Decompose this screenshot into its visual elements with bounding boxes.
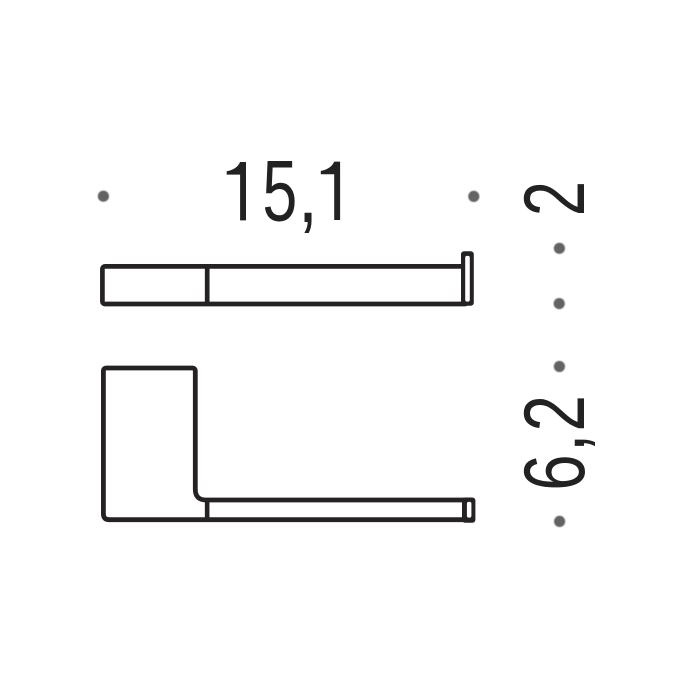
svg-text:2: 2 (507, 181, 604, 216)
svg-text:,: , (298, 145, 318, 241)
svg-text:5: 5 (262, 143, 297, 239)
svg-text:6,2: 6,2 (508, 393, 604, 491)
